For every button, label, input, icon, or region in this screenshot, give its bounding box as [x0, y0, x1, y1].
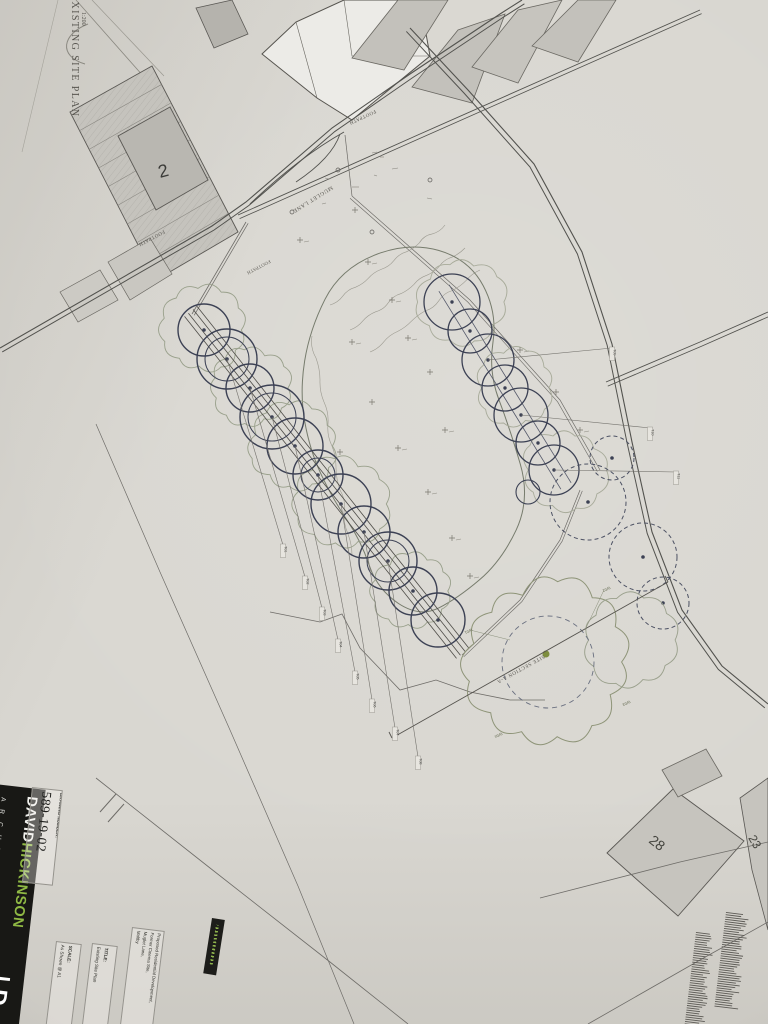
- tree-tag-label: T06: [373, 701, 377, 708]
- tree-tag-label: T11: [677, 473, 681, 479]
- contour-line: [330, 225, 445, 305]
- notes-microtext-line: [690, 978, 704, 981]
- notes-microtext-line: [686, 1012, 699, 1014]
- tree-center-dot: [536, 441, 539, 444]
- notes-microtext-line: [723, 939, 740, 942]
- spot-level-mark: [352, 207, 358, 213]
- sheet-edge-line: [92, 0, 164, 76]
- avenue-dashed-line: [449, 285, 571, 483]
- notes-microtext-line: [687, 1005, 702, 1008]
- notes-microtext-line: [692, 964, 704, 966]
- survey-microtext: [372, 152, 377, 153]
- spot-level-microtext: [304, 241, 309, 242]
- site-ne-edge: [345, 135, 352, 196]
- spot-level-microtext: [474, 577, 479, 578]
- survey-symbol: [428, 178, 432, 182]
- spot-level-mark: [427, 369, 433, 375]
- spot-level-mark: [449, 535, 455, 541]
- spot-level-mark: [553, 389, 559, 395]
- spot-level-mark: [349, 339, 355, 345]
- spot-level-microtext: [412, 339, 417, 340]
- tree-canopy: [416, 260, 507, 347]
- notes-microtext-line: [692, 966, 705, 968]
- notes-microtext-line: [719, 965, 737, 968]
- avenue-line: [188, 313, 460, 655]
- notes-microtext-line: [716, 994, 732, 997]
- spot-level-mark: [365, 259, 371, 265]
- spot-level-mark: [425, 489, 431, 495]
- tag-leader-line: [554, 470, 676, 472]
- tree-canopy: [585, 592, 678, 688]
- spot-level-microtext: [449, 431, 454, 432]
- survey-symbol: [370, 230, 374, 234]
- spot-level-mark: [395, 445, 401, 451]
- survey-microtext: [427, 198, 432, 199]
- notes-microtext-line: [694, 948, 710, 951]
- notes-microtext-line: [685, 1021, 699, 1024]
- notes-microtext-line: [686, 1014, 704, 1017]
- break-marks: [100, 794, 124, 822]
- notes-microtext-line: [694, 943, 707, 945]
- notes-microtext-line: [690, 982, 704, 985]
- notes-microtext-line: [714, 1006, 738, 1010]
- building: [196, 0, 248, 48]
- plan-linework: T01T02T03T04T05T06T07T08T09T10T11W01W02W…: [0, 0, 768, 1024]
- notes-microtext-line: [689, 987, 705, 990]
- tree-center-dot: [436, 618, 440, 622]
- notes-microtext-line: [719, 971, 737, 974]
- tree-tag-label: T09: [613, 349, 617, 356]
- notes-microtext-line: [686, 1010, 700, 1013]
- tag-leader-line: [272, 417, 322, 608]
- tree-center-dot: [586, 500, 590, 504]
- street-label-footpath-south: FOOTPATH: [246, 259, 272, 276]
- survey-microtext: [322, 203, 326, 204]
- spot-level-microtext: [372, 263, 377, 264]
- notes-microtext-line: [716, 992, 733, 995]
- notes-microtext: [714, 912, 749, 1009]
- notes-microtext-line: [726, 914, 742, 917]
- road-branch: [608, 316, 768, 386]
- tree-tag-label: T01: [284, 546, 288, 553]
- tree-tag-label: T03: [323, 609, 327, 616]
- spot-level-mark: [389, 297, 395, 303]
- brand-d-logo-bar: [0, 977, 10, 981]
- notes-microtext-line: [691, 973, 703, 975]
- notes-microtext-line: [694, 946, 712, 949]
- path-edge: [462, 490, 580, 655]
- tree-crown-spread: [502, 616, 594, 708]
- notes-microtext-line: [719, 967, 734, 970]
- spot-level-microtext: [456, 539, 461, 540]
- tree-tag-label: T10: [651, 429, 655, 436]
- avenue-line: [197, 306, 469, 648]
- tree-center-dot: [468, 329, 471, 332]
- canopy-tag-label: W03: [621, 699, 631, 707]
- notes-microtext-line: [724, 930, 739, 933]
- plot-23-building: [740, 778, 768, 930]
- tree-tag-label: T04: [339, 641, 343, 648]
- notes-microtext-line: [719, 969, 734, 972]
- notes-microtext-line: [689, 991, 706, 994]
- spot-level-mark: [337, 449, 343, 455]
- notes-microtext-line: [693, 959, 707, 962]
- notes-microtext-line: [721, 951, 739, 954]
- notes-microtext-line: [716, 996, 732, 999]
- notes-microtext-line: [715, 1003, 732, 1006]
- site-plan-photo: T01T02T03T04T05T06T07T08T09T10T11W01W02W…: [0, 0, 768, 1024]
- mini-logo-microtext: [210, 925, 219, 965]
- site-ne-edge: [352, 196, 600, 470]
- tree-center-dot: [450, 300, 453, 303]
- tree-tag-label: T02: [306, 578, 310, 585]
- vegetation-boundary: [302, 247, 524, 612]
- notes-microtext-line: [688, 998, 703, 1001]
- notes-microtext-line: [696, 932, 710, 935]
- tree-center-dot: [641, 555, 645, 559]
- notes-microtext-line: [695, 939, 710, 942]
- site-ne-edge: [350, 198, 597, 471]
- large-tree-canopy: [461, 577, 629, 745]
- notes-microtext-line: [696, 934, 711, 937]
- tree-center-dot: [503, 386, 506, 389]
- path-edge: [464, 491, 583, 657]
- spot-level-mark: [369, 399, 375, 405]
- notes-microtext-line: [726, 912, 743, 915]
- notes-microtext-line: [694, 950, 710, 953]
- notes-microtext: [685, 932, 716, 1024]
- sheet-corner-scale: 1:200: [80, 12, 86, 26]
- spot-level-microtext: [584, 431, 589, 432]
- notes-microtext-line: [687, 1007, 700, 1009]
- notes-microtext-line: [686, 1016, 703, 1019]
- building: [662, 749, 722, 797]
- spot-level-microtext: [356, 343, 361, 344]
- road-branch: [606, 312, 768, 382]
- notes-microtext-line: [695, 941, 707, 943]
- spot-level-mark: [467, 573, 473, 579]
- tree-center-dot: [610, 456, 614, 460]
- notes-microtext-line: [724, 926, 741, 929]
- notes-microtext-line: [721, 949, 736, 952]
- tree-circle: [516, 480, 540, 504]
- brand-d-logo: D: [0, 988, 13, 1008]
- survey-microtext: [392, 168, 398, 169]
- tree-tag-label: T05: [356, 673, 360, 680]
- spot-level-microtext: [402, 449, 407, 450]
- tag-leader-line: [488, 348, 612, 360]
- canopy-tag-label: W04: [493, 731, 503, 739]
- spot-level-mark: [577, 427, 583, 433]
- notes-microtext-line: [690, 980, 705, 983]
- notes-microtext-line: [695, 937, 711, 940]
- tree-center-dot: [411, 589, 415, 593]
- notes-microtext-line: [689, 989, 703, 992]
- tree-tag-label: T07: [396, 729, 400, 736]
- spot-level-microtext: [396, 301, 401, 302]
- notes-microtext-line: [689, 985, 707, 988]
- notes-microtext-line: [693, 955, 706, 957]
- notes-microtext-line: [715, 999, 730, 1002]
- tree-tag-label: T08: [419, 758, 423, 765]
- road-east: [410, 28, 768, 704]
- spot-level-microtext: [432, 493, 437, 494]
- brand-subtitle: A R C H I T E C T U R E: [0, 797, 7, 940]
- road-east: [406, 31, 764, 707]
- spot-level-mark: [442, 427, 448, 433]
- notes-microtext-line: [691, 975, 707, 978]
- road-junction-curve: [296, 134, 340, 182]
- tree-center-dot: [202, 328, 206, 332]
- tag-leader-line: [341, 504, 372, 700]
- survey-microtext: [374, 175, 377, 176]
- notes-microtext-line: [717, 987, 732, 990]
- sheet-border-line: [22, 0, 58, 152]
- notes-microtext-line: [722, 942, 739, 945]
- spot-level-mark: [297, 237, 303, 243]
- spot-level-mark: [405, 335, 411, 341]
- sheet-corner-title: EXISTING SITE PLAN: [69, 0, 80, 118]
- notes-microtext-line: [691, 969, 709, 972]
- contour-line: [350, 248, 465, 330]
- section-line: [392, 582, 668, 738]
- notes-microtext-line: [715, 1001, 732, 1004]
- site-plan-drawing: T01T02T03T04T05T06T07T08T09T10T11W01W02W…: [0, 0, 768, 1024]
